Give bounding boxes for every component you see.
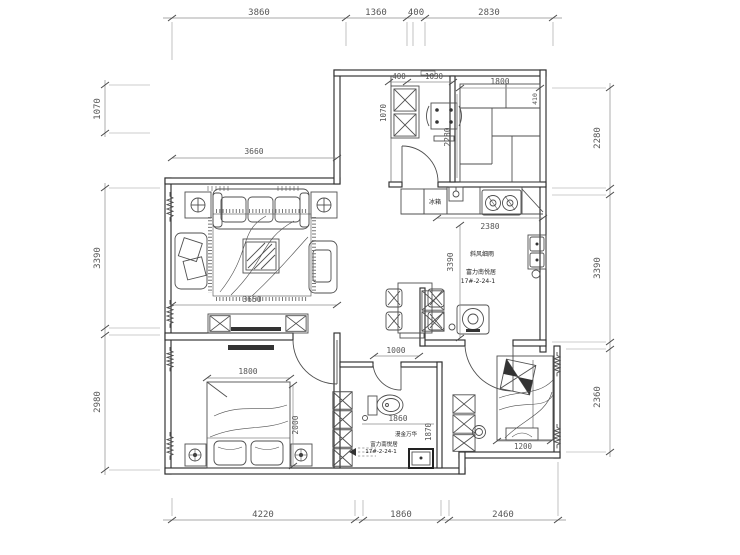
wall-step	[459, 452, 465, 474]
side-table-right	[311, 192, 337, 218]
stove	[482, 190, 521, 215]
dim-bottom-2: 1860	[390, 510, 412, 520]
bedroom-tv	[228, 345, 274, 350]
bedroom-left-door	[293, 340, 337, 384]
bathroom-door	[373, 364, 401, 390]
dim-top-3: 400	[408, 8, 424, 18]
fridge: 冰箱	[401, 189, 447, 214]
dim-bath-width: 1860	[388, 414, 407, 423]
center-note-line1: 斜风细雨	[470, 250, 494, 258]
walls	[165, 70, 560, 474]
dimension-right: 2280 3390 2360	[552, 83, 614, 457]
curtain-ticks	[208, 186, 228, 191]
tv-screen	[231, 327, 281, 331]
wall-kitchen-a	[389, 182, 402, 187]
wall-kitchen-b	[438, 182, 546, 187]
dim-entry-cabinet: 400	[392, 72, 406, 81]
center-note-line2: 富力南悦居	[466, 268, 496, 276]
floor-drain	[363, 416, 368, 421]
balcony-tiles	[460, 84, 540, 182]
dim-right-1: 2280	[593, 127, 603, 149]
dim-living-top: 3660	[244, 147, 263, 156]
bed-bench	[506, 428, 538, 440]
pillow	[251, 441, 283, 465]
wall-bottom-right	[459, 452, 560, 458]
dim-balcony-edge: 410	[531, 93, 539, 105]
dim-entry-height: 1070	[379, 103, 388, 122]
dim-kitchen-height: 3390	[446, 252, 455, 271]
toilet	[368, 395, 403, 415]
dim-dining: 1000	[386, 346, 405, 355]
dim-bottom-3: 2460	[492, 510, 514, 520]
dim-bed-left-width: 1800	[238, 367, 257, 376]
wall-bath-top-a	[340, 362, 373, 367]
nightstand-right	[291, 444, 312, 466]
dim-right-2: 3390	[593, 257, 603, 279]
dining-chair	[386, 312, 402, 330]
dim-top-1: 3860	[248, 8, 270, 18]
dimension-left: 1070 3390 2980	[93, 80, 160, 475]
shoe-cabinet	[391, 86, 419, 138]
dim-balcony-width: 1800	[490, 77, 509, 86]
washbasin	[409, 449, 433, 468]
dim-entry-opening: 1030	[425, 72, 444, 81]
dining-chair	[428, 312, 444, 330]
rug	[210, 211, 314, 299]
dim-bed-left-depth: 2000	[291, 415, 300, 434]
wall-corridor-left	[334, 70, 340, 184]
dim-living-bottom: 3650	[242, 295, 261, 304]
dim-top-4: 2830	[478, 8, 500, 18]
wall-hall-a	[420, 340, 465, 346]
nightstand-left	[185, 444, 206, 466]
dim-left-1: 1070	[93, 98, 103, 120]
pinwheel-quilt	[500, 359, 536, 395]
dimension-top: 3860 1360 400 2830	[163, 8, 562, 60]
bed-right	[497, 356, 553, 440]
dim-balcony-height: 2280	[443, 127, 452, 146]
wall-hall-b	[513, 340, 546, 346]
bedroom-left	[185, 340, 352, 468]
wardrobe-right	[453, 395, 475, 451]
bath-note-line3: 17#-2-24-1	[365, 449, 397, 455]
bath-note-line2: 富力南悦居	[370, 440, 398, 448]
bed-left	[207, 382, 290, 468]
curtain-ticks	[278, 186, 298, 191]
side-table-left	[185, 192, 211, 218]
wall-right-upper	[540, 70, 546, 352]
stool	[473, 426, 486, 439]
center-note-line3: 17#-2-24-1	[461, 278, 496, 285]
washing-machine	[449, 305, 489, 334]
bedroom-right	[453, 346, 553, 451]
windows	[167, 186, 560, 460]
dim-left-2: 3390	[93, 247, 103, 269]
tv-cabinet	[208, 314, 308, 333]
dim-top-2: 1360	[365, 8, 387, 18]
dim-left-3: 2980	[93, 391, 103, 413]
wall-bath-right	[437, 362, 442, 468]
entry-door	[402, 146, 438, 182]
wall-living-top	[165, 178, 340, 184]
wall-bath-top-b	[401, 362, 442, 367]
sofa	[213, 189, 309, 229]
living-room	[175, 189, 337, 333]
armchair-left	[175, 233, 207, 289]
dim-bath-depth: 1870	[424, 422, 433, 441]
dim-bottom-1: 4220	[252, 510, 274, 520]
floor-plan-canvas: 3860 1360 400 2830 4220 1860 2460 1070 3…	[0, 0, 740, 555]
counter	[401, 187, 543, 214]
pillow	[214, 441, 246, 465]
balcony	[460, 84, 540, 182]
dining-chair	[386, 289, 402, 307]
kitchen: 冰箱	[401, 187, 546, 334]
bath-note-line1: 漫金万华	[395, 430, 418, 438]
fridge-label: 冰箱	[429, 198, 441, 206]
dim-bed-right-width: 1200	[514, 442, 533, 451]
floor-plan-drawing: 3860 1360 400 2830 4220 1860 2460 1070 3…	[0, 0, 740, 555]
dim-right-3: 2360	[593, 386, 603, 408]
dim-counter: 2380	[480, 222, 499, 231]
wall-living-bottom	[165, 333, 293, 340]
kitchen-corner-sink	[449, 187, 463, 201]
